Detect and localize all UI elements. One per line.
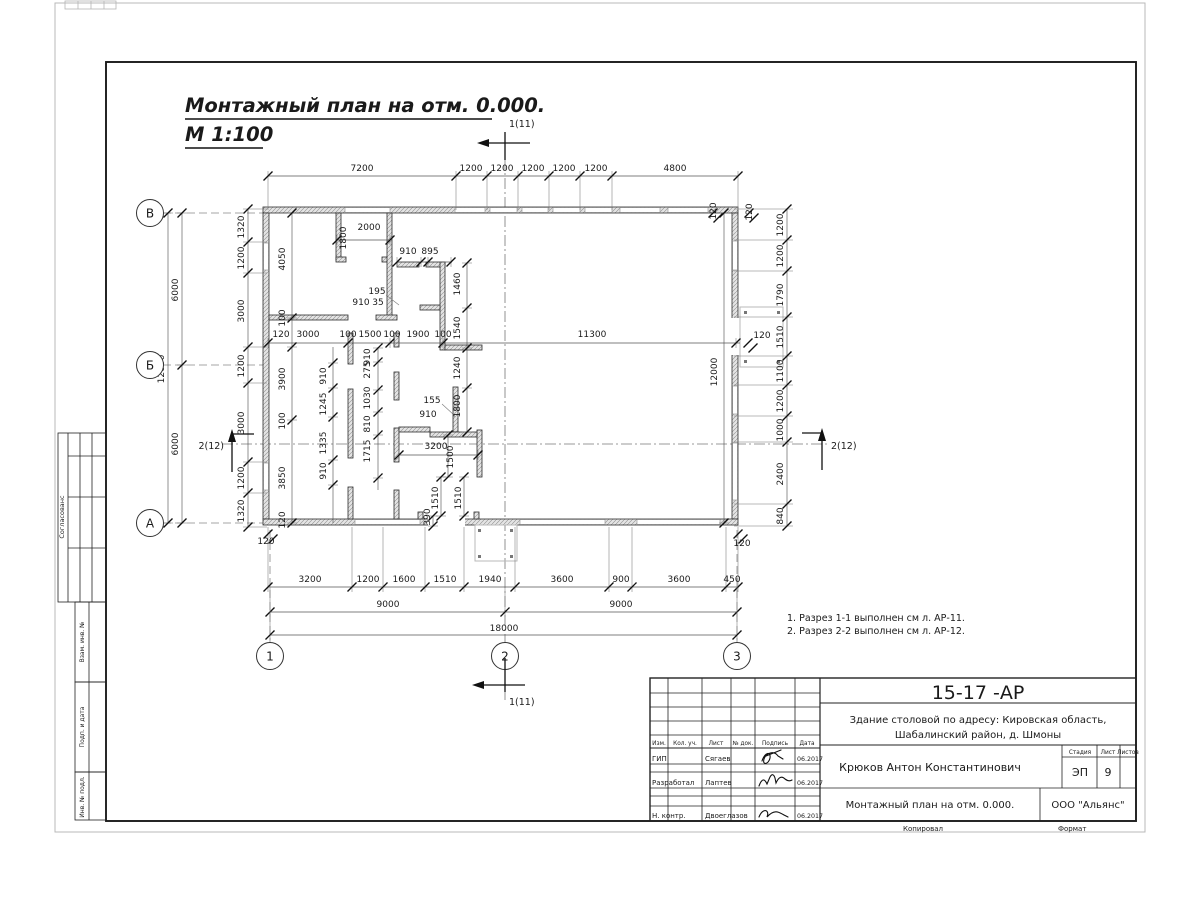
sheet-label: Лист: [1101, 750, 1116, 756]
strip-label-inv: Инв. № подл.: [79, 776, 86, 817]
dim-label: 895: [421, 247, 438, 257]
stage-value: ЭП: [1072, 766, 1088, 779]
dim-label: 155: [423, 396, 440, 406]
dim-label: 1200: [237, 466, 247, 489]
dim-label: 810: [363, 415, 373, 432]
drawing-canvas: Монтажный план на отм. 0.000. М 1:100: [0, 0, 1200, 900]
dim-label: 1790: [776, 283, 786, 306]
dim-label: 1500: [446, 445, 456, 468]
dim-label: 1540: [453, 316, 463, 339]
title-line1: Монтажный план на отм. 0.000.: [185, 94, 545, 117]
dim-label: 450: [723, 575, 740, 585]
designer-name: Крюков Антон Константинович: [839, 761, 1021, 774]
partition: [394, 490, 399, 519]
dim-label: 1030: [363, 386, 373, 409]
section-label-1-top: 1(11): [509, 119, 535, 130]
col-izm: Изм.: [652, 741, 666, 747]
dim-label: 910: [319, 367, 329, 384]
dim-label: 1000: [776, 418, 786, 441]
dim-label: 910: [419, 410, 436, 420]
sheet-title: Монтажный план на отм. 0.000.: [846, 800, 1015, 811]
row2-name: Лаптев: [705, 779, 732, 787]
dim-label: 3600: [551, 575, 574, 585]
dim-label: 3900: [278, 367, 288, 390]
axis-label: Б: [146, 359, 154, 373]
sheet-value: 9: [1105, 766, 1112, 779]
row1-role: ГИП: [652, 755, 667, 763]
partition: [474, 512, 479, 519]
partition: [430, 432, 477, 437]
dim-label: 2400: [776, 462, 786, 485]
dim-label: 910: [352, 298, 369, 308]
dim-label: 195: [368, 287, 385, 297]
dim-label: 3000: [297, 330, 320, 340]
col-data: Дата: [799, 741, 814, 747]
dim-label: 12000: [710, 357, 720, 386]
footer-format: Формат: [1058, 825, 1086, 833]
dim-label: 100: [278, 412, 288, 429]
partition: [394, 372, 399, 400]
strip-label-podp: Подп. и дата: [79, 706, 86, 747]
dim-label: 3000: [237, 411, 247, 434]
dim-label: 2000: [358, 223, 381, 233]
dim-label: 1200: [776, 389, 786, 412]
dim-label: 1200: [522, 164, 545, 174]
dim-label: 18000: [490, 624, 519, 634]
dim-label: 6000: [171, 278, 181, 301]
axis-label: 1: [266, 650, 274, 664]
dim-label: 1510: [434, 575, 457, 585]
dim-label: 120: [257, 537, 274, 547]
dim-label: 1200: [491, 164, 514, 174]
dim-label: 3200: [299, 575, 322, 585]
dim-label: 1200: [460, 164, 483, 174]
col-dok: № док.: [733, 741, 754, 747]
dim-label: 840: [776, 507, 786, 524]
dim-label: 390: [423, 508, 433, 525]
dim-label: 1200: [776, 213, 786, 236]
dim-label: 910: [399, 247, 416, 257]
dim-label: 11300: [578, 330, 607, 340]
row3-role: Н. контр.: [652, 812, 686, 820]
dim-label: 100: [434, 330, 451, 340]
dim-label: 1320: [237, 499, 247, 522]
dim-label: 1460: [453, 272, 463, 295]
dim-label: 35: [372, 298, 383, 308]
note-line1: 1. Разрез 1-1 выполнен см л. АР-11.: [787, 613, 965, 624]
sheets-label: Листов: [1117, 750, 1139, 756]
partition: [336, 257, 346, 262]
dim-label: 9000: [377, 600, 400, 610]
dim-label: 3850: [278, 466, 288, 489]
row2-date: 06.2017: [797, 780, 823, 787]
strip-label-approve: Согласованс: [58, 495, 66, 539]
dim-label: 1200: [585, 164, 608, 174]
col-list: Лист: [709, 741, 724, 747]
dim-label: 900: [612, 575, 629, 585]
dim-label: 100: [383, 330, 400, 340]
strip-label-vzam: Взам. инв. №: [79, 622, 86, 663]
partition: [376, 315, 397, 320]
dim-label: 1800: [453, 394, 463, 417]
col-podpis: Подпись: [762, 741, 789, 747]
partition: [399, 427, 430, 432]
dim-label: 4050: [278, 247, 288, 270]
dim-label: 1200: [553, 164, 576, 174]
row3-date: 06.2017: [797, 813, 823, 820]
dim-label: 4800: [664, 164, 687, 174]
note-line2: 2. Разрез 2-2 выполнен см л. АР-12.: [787, 626, 965, 637]
row1-name: Сягаев: [705, 755, 731, 763]
section-label-1-bottom: 1(11): [509, 697, 535, 708]
dim-label: 120: [272, 330, 289, 340]
object-name-line2: Шабалинский район, д. Шмоны: [895, 730, 1061, 741]
dim-label: 1510: [431, 486, 441, 509]
section-label-2-left: 2(12): [198, 441, 224, 452]
dim-label: 1240: [453, 356, 463, 379]
axis-label: А: [146, 517, 155, 531]
dim-label: 120: [709, 202, 719, 219]
dim-label: 3600: [668, 575, 691, 585]
partition: [445, 345, 482, 350]
row3-name: Двоеглазов: [705, 812, 748, 820]
dim-label: 1200: [357, 575, 380, 585]
dim-label: 120: [278, 511, 288, 528]
company-name: ООО "Альянс": [1051, 800, 1124, 811]
footer-kopiroval: Копировал: [903, 825, 943, 833]
dim-label: 3200: [425, 442, 448, 452]
dim-label: 100: [339, 330, 356, 340]
drawing-sheet: Монтажный план на отм. 0.000. М 1:100: [0, 0, 1200, 900]
row1-date: 06.2017: [797, 756, 823, 763]
door-opening-right: [731, 318, 739, 355]
partition: [348, 487, 353, 519]
dim-label: 1200: [237, 354, 247, 377]
partition: [348, 389, 353, 458]
dim-label: 1940: [479, 575, 502, 585]
dim-label: 1320: [237, 215, 247, 238]
dim-label: 1335: [319, 432, 329, 455]
dim-label: 275: [363, 361, 373, 378]
dim-label: 1800: [339, 226, 349, 249]
col-koluch: Кол. уч.: [673, 741, 697, 747]
axis-label: В: [146, 207, 154, 221]
dim-label: 120: [733, 539, 750, 549]
axis-label: 3: [733, 650, 741, 664]
section-label-2-right: 2(12): [831, 441, 857, 452]
partition: [420, 305, 440, 310]
dim-label: 1500: [359, 330, 382, 340]
title-line2: М 1:100: [185, 123, 273, 146]
dim-label: 9000: [610, 600, 633, 610]
dim-label: 1100: [776, 359, 786, 382]
dim-label: 7200: [351, 164, 374, 174]
dim-label: 1200: [776, 244, 786, 267]
dim-label: 1900: [407, 330, 430, 340]
partition: [387, 213, 392, 318]
stage-label: Стадия: [1069, 750, 1091, 756]
dim-label: 1200: [237, 246, 247, 269]
object-name-line1: Здание столовой по адресу: Кировская обл…: [850, 715, 1107, 726]
project-code: 15-17 -АР: [932, 682, 1025, 704]
partition: [397, 262, 419, 267]
dim-label: 100: [278, 309, 288, 326]
dim-label: 1245: [319, 393, 329, 416]
dim-label: 1715: [363, 440, 373, 463]
dim-label: 6000: [171, 432, 181, 455]
dim-label: 910: [319, 462, 329, 479]
dim-label: 120: [745, 203, 755, 220]
dim-label: 3000: [237, 299, 247, 322]
dim-label: 1600: [393, 575, 416, 585]
dim-label: 1510: [776, 325, 786, 348]
dim-label: 120: [753, 331, 770, 341]
row2-role: Разработал: [652, 779, 694, 787]
dim-label: 1510: [454, 486, 464, 509]
